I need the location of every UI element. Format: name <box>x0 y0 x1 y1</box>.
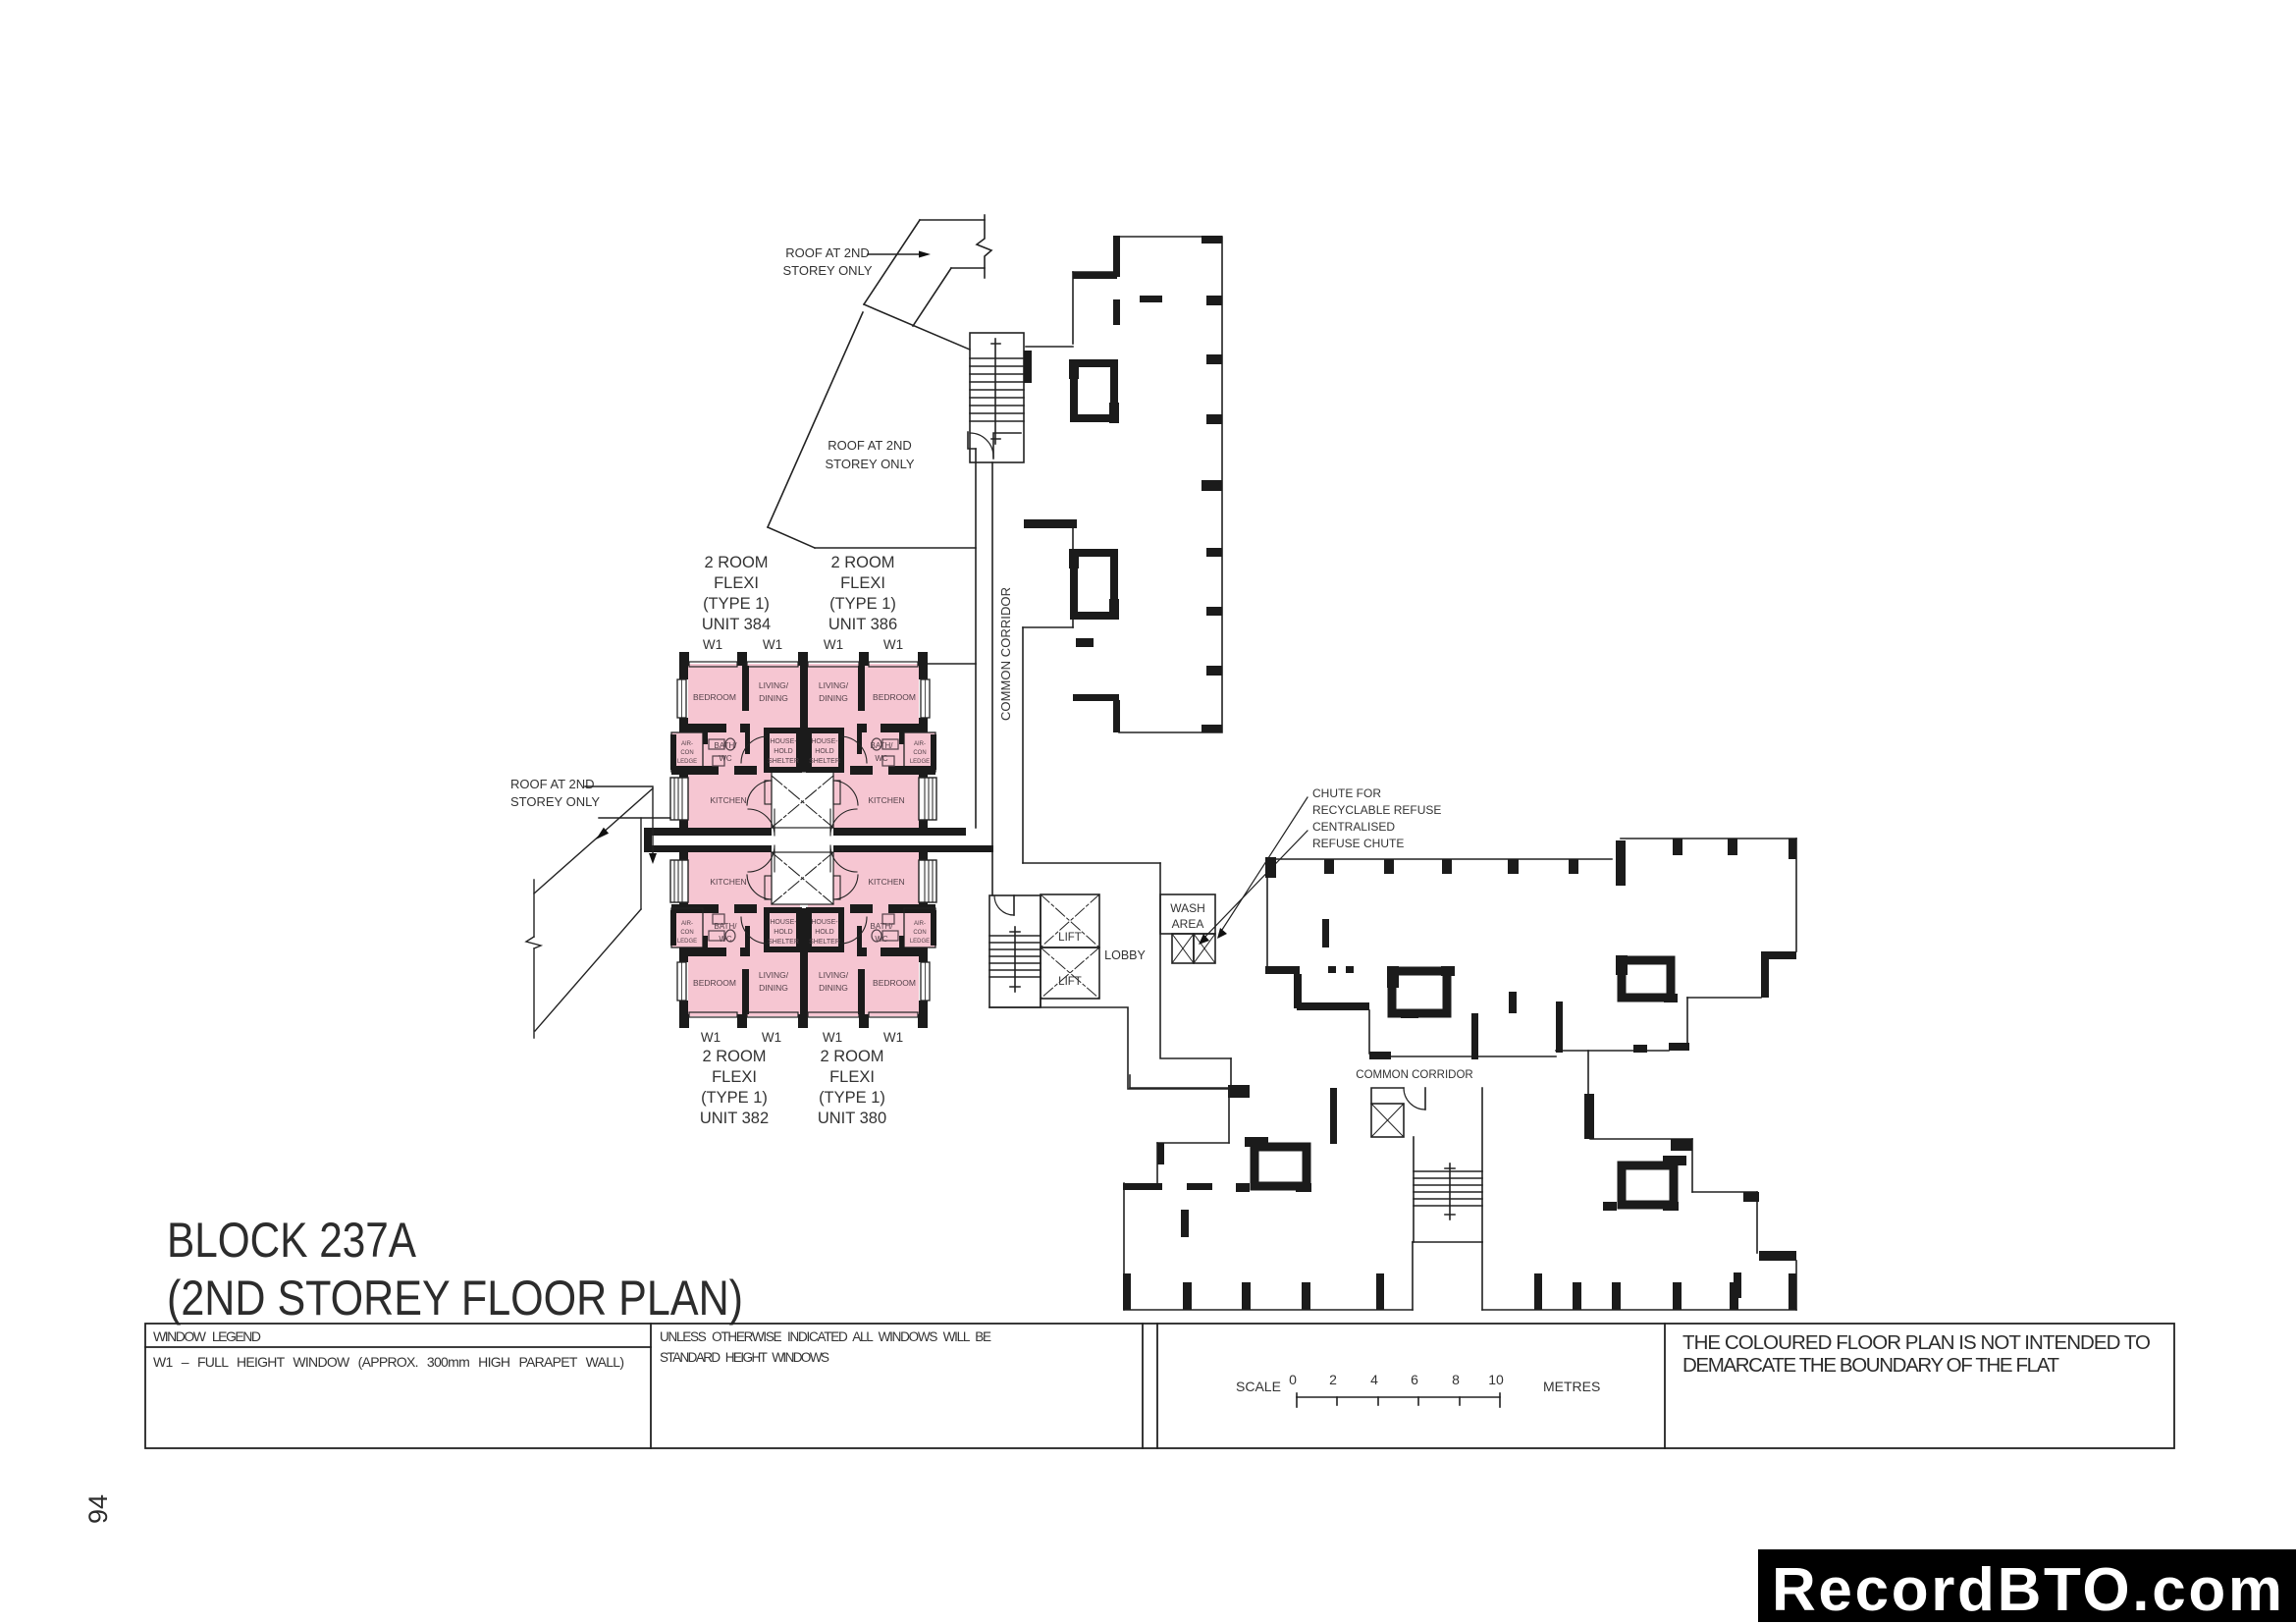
svg-text:HOUSE-: HOUSE- <box>811 738 838 745</box>
svg-text:WINDOW LEGEND: WINDOW LEGEND <box>153 1328 261 1344</box>
svg-text:AIR-: AIR- <box>681 921 693 927</box>
svg-text:HOLD: HOLD <box>774 929 792 936</box>
svg-text:COMMON CORRIDOR: COMMON CORRIDOR <box>1356 1069 1472 1081</box>
svg-text:AIR-: AIR- <box>681 741 693 747</box>
svg-text:BATH/: BATH/ <box>715 741 738 750</box>
svg-text:W1: W1 <box>883 1030 903 1045</box>
svg-text:RECYCLABLE REFUSE: RECYCLABLE REFUSE <box>1312 803 1441 817</box>
svg-text:AREA: AREA <box>1172 917 1204 931</box>
svg-text:BATH/: BATH/ <box>871 922 894 931</box>
svg-text:DINING: DINING <box>819 983 848 993</box>
svg-text:94: 94 <box>83 1494 113 1524</box>
svg-text:(2ND STOREY FLOOR PLAN): (2ND STOREY FLOOR PLAN) <box>167 1271 743 1326</box>
svg-text:10: 10 <box>1488 1372 1504 1387</box>
svg-text:KITCHEN: KITCHEN <box>868 877 904 887</box>
svg-text:0: 0 <box>1289 1372 1297 1387</box>
svg-text:RecordBTO.com: RecordBTO.com <box>1772 1556 2282 1624</box>
svg-text:LEDGE: LEDGE <box>910 939 930 945</box>
svg-text:4: 4 <box>1370 1372 1378 1387</box>
svg-text:LEDGE: LEDGE <box>910 759 930 765</box>
svg-text:BEDROOM: BEDROOM <box>693 978 736 988</box>
svg-text:HOLD: HOLD <box>815 748 833 755</box>
svg-text:WC: WC <box>875 754 888 763</box>
svg-text:AIR-: AIR- <box>914 921 926 927</box>
svg-text:KITCHEN: KITCHEN <box>710 795 746 805</box>
svg-text:UNIT 384: UNIT 384 <box>702 616 771 633</box>
svg-text:(TYPE 1): (TYPE 1) <box>701 1089 768 1107</box>
svg-text:BATH/: BATH/ <box>715 922 738 931</box>
svg-text:W1: W1 <box>763 637 782 652</box>
svg-text:DINING: DINING <box>819 693 848 703</box>
svg-text:STOREY ONLY: STOREY ONLY <box>510 794 600 809</box>
svg-text:W1: W1 <box>823 1030 842 1045</box>
svg-text:BEDROOM: BEDROOM <box>693 692 736 702</box>
svg-text:AIR-: AIR- <box>914 741 926 747</box>
svg-text:8: 8 <box>1452 1372 1460 1387</box>
svg-text:UNIT 380: UNIT 380 <box>818 1110 886 1127</box>
svg-text:HOUSE-: HOUSE- <box>770 919 797 926</box>
svg-text:CHUTE FOR: CHUTE FOR <box>1312 786 1381 800</box>
svg-text:UNIT 382: UNIT 382 <box>700 1110 769 1127</box>
svg-text:W1: W1 <box>703 637 722 652</box>
svg-text:HOUSE-: HOUSE- <box>811 919 838 926</box>
svg-text:SHELTER: SHELTER <box>809 758 840 765</box>
svg-text:LIFT: LIFT <box>1058 932 1082 944</box>
svg-text:UNIT 386: UNIT 386 <box>828 616 897 633</box>
svg-text:WC: WC <box>719 754 732 763</box>
svg-text:BEDROOM: BEDROOM <box>873 978 916 988</box>
svg-text:BATH/: BATH/ <box>871 741 894 750</box>
svg-text:W1: W1 <box>762 1030 781 1045</box>
svg-text:2 ROOM: 2 ROOM <box>704 554 768 571</box>
svg-text:REFUSE CHUTE: REFUSE CHUTE <box>1312 837 1404 850</box>
svg-text:SHELTER: SHELTER <box>809 939 840 946</box>
svg-text:STOREY ONLY: STOREY ONLY <box>782 263 872 278</box>
svg-text:HOLD: HOLD <box>815 929 833 936</box>
svg-text:LIVING/: LIVING/ <box>819 970 849 980</box>
svg-text:WC: WC <box>719 935 732 944</box>
svg-text:FLEXI: FLEXI <box>714 574 759 592</box>
svg-text:BEDROOM: BEDROOM <box>873 692 916 702</box>
svg-text:CON: CON <box>913 750 926 756</box>
svg-text:W1 – FULL HEIGHT WINDOW (APPRO: W1 – FULL HEIGHT WINDOW (APPROX. 300mm H… <box>153 1354 624 1370</box>
svg-text:(TYPE 1): (TYPE 1) <box>819 1089 885 1107</box>
svg-text:2 ROOM: 2 ROOM <box>702 1048 766 1065</box>
svg-text:SHELTER: SHELTER <box>768 939 799 946</box>
svg-text:HOUSE-: HOUSE- <box>770 738 797 745</box>
svg-text:THE COLOURED FLOOR PLAN IS NOT: THE COLOURED FLOOR PLAN IS NOT INTENDED … <box>1682 1331 2151 1354</box>
svg-text:ROOF AT 2ND: ROOF AT 2ND <box>785 245 869 260</box>
svg-text:FLEXI: FLEXI <box>840 574 885 592</box>
svg-text:WC: WC <box>875 935 888 944</box>
svg-text:LIVING/: LIVING/ <box>759 680 789 690</box>
svg-text:LEDGE: LEDGE <box>677 759 697 765</box>
svg-text:COMMON CORRIDOR: COMMON CORRIDOR <box>998 587 1013 721</box>
svg-text:W1: W1 <box>701 1030 721 1045</box>
svg-text:KITCHEN: KITCHEN <box>868 795 904 805</box>
svg-text:SHELTER: SHELTER <box>768 758 799 765</box>
svg-text:FLEXI: FLEXI <box>712 1068 757 1086</box>
svg-text:CON: CON <box>680 750 693 756</box>
svg-text:METRES: METRES <box>1543 1379 1600 1394</box>
svg-text:UNLESS OTHERWISE INDICATED ALL: UNLESS OTHERWISE INDICATED ALL WINDOWS W… <box>660 1329 991 1344</box>
svg-text:SCALE: SCALE <box>1236 1379 1281 1394</box>
svg-text:STANDARD HEIGHT WINDOWS: STANDARD HEIGHT WINDOWS <box>660 1350 829 1365</box>
svg-text:CENTRALISED: CENTRALISED <box>1312 820 1395 834</box>
svg-text:LOBBY: LOBBY <box>1104 948 1146 962</box>
svg-text:DEMARCATE THE BOUNDARY OF THE: DEMARCATE THE BOUNDARY OF THE FLAT <box>1682 1354 2059 1377</box>
svg-text:(TYPE 1): (TYPE 1) <box>829 595 896 613</box>
svg-text:2: 2 <box>1329 1372 1337 1387</box>
svg-text:ROOF AT 2ND: ROOF AT 2ND <box>828 438 911 453</box>
svg-text:BLOCK 237A: BLOCK 237A <box>167 1213 417 1268</box>
svg-text:DINING: DINING <box>759 983 788 993</box>
svg-text:6: 6 <box>1411 1372 1418 1387</box>
svg-text:LIVING/: LIVING/ <box>819 680 849 690</box>
svg-text:STOREY ONLY: STOREY ONLY <box>825 457 914 471</box>
svg-text:DINING: DINING <box>759 693 788 703</box>
svg-text:W1: W1 <box>883 637 903 652</box>
svg-text:LIFT: LIFT <box>1058 976 1082 988</box>
svg-text:WASH: WASH <box>1170 901 1205 915</box>
svg-text:LIVING/: LIVING/ <box>759 970 789 980</box>
svg-text:HOLD: HOLD <box>774 748 792 755</box>
svg-text:FLEXI: FLEXI <box>829 1068 875 1086</box>
svg-text:ROOF AT 2ND: ROOF AT 2ND <box>510 777 594 791</box>
svg-text:LEDGE: LEDGE <box>677 939 697 945</box>
svg-text:W1: W1 <box>824 637 843 652</box>
svg-text:2 ROOM: 2 ROOM <box>830 554 894 571</box>
svg-text:2 ROOM: 2 ROOM <box>820 1048 883 1065</box>
svg-text:KITCHEN: KITCHEN <box>710 877 746 887</box>
svg-text:(TYPE 1): (TYPE 1) <box>703 595 770 613</box>
svg-text:CON: CON <box>680 930 693 936</box>
svg-text:CON: CON <box>913 930 926 936</box>
